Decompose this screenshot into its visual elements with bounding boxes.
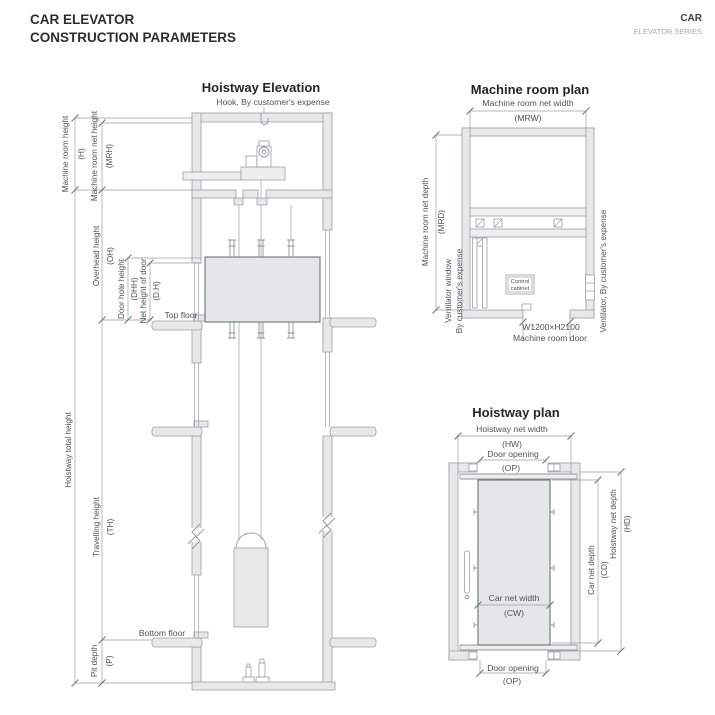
dim-net-height-of-door: Net height of door bbox=[139, 258, 148, 323]
series-label: ELEVATOR SERIES bbox=[634, 27, 702, 36]
hoistway-plan-car bbox=[465, 480, 555, 645]
pit-buffers bbox=[243, 659, 269, 682]
dim-hoistway-total-height: Hoistway total height bbox=[64, 412, 73, 488]
top-floor-label: Top floor bbox=[165, 310, 198, 320]
dim-door-opening-bottom-sym: (OP) bbox=[503, 676, 521, 686]
wall-break-right bbox=[319, 513, 335, 538]
dim-net-height-of-door-sym: (D.H) bbox=[152, 281, 161, 301]
dim-hoistway-net-depth: Hoistway net depth bbox=[609, 489, 618, 559]
counterweight-plan-dot bbox=[465, 595, 469, 599]
dim-hoistway-net-depth-sym: (HD) bbox=[623, 515, 632, 533]
dim-car-net-width: Car net width bbox=[489, 593, 540, 603]
note-ventilator-right: Ventilator, By customer's expense bbox=[599, 209, 608, 332]
page-title-line1: CAR ELEVATOR bbox=[30, 12, 135, 27]
dim-machine-room-net-depth: Machine room net depth bbox=[421, 177, 430, 266]
machine-room-plan-title: Machine room plan bbox=[471, 82, 590, 97]
dim-machine-room-height: Machine room height bbox=[61, 115, 70, 192]
dim-pit-depth-sym: (P) bbox=[105, 655, 114, 666]
machine-room-plan: Machine room plan bbox=[421, 82, 608, 343]
dim-machine-room-height-sym: (H) bbox=[77, 148, 86, 160]
drawing-page: CAR ELEVATOR CONSTRUCTION PARAMETERS CAR… bbox=[0, 0, 715, 715]
dim-machine-room-net-width: Machine room net width bbox=[482, 98, 573, 108]
note-ventilator-window-line1: Ventilator window bbox=[444, 259, 453, 323]
dim-travelling-height: Travelling height bbox=[92, 496, 101, 556]
dim-machine-room-net-height: Machine room net height bbox=[90, 110, 99, 201]
machine-room-door-name: Machine room door bbox=[513, 333, 587, 343]
page-title-line2: CONSTRUCTION PARAMETERS bbox=[30, 30, 236, 45]
dim-car-net-depth-sym: (CD) bbox=[600, 561, 609, 579]
note-ventilator-window-line2: By customer's expense bbox=[455, 248, 464, 333]
ventilator-right-shape bbox=[586, 275, 595, 300]
dim-machine-room-net-width-sym: (MRW) bbox=[514, 113, 541, 123]
ventilator-window-shape2 bbox=[483, 238, 488, 308]
bottom-floor-label: Bottom floor bbox=[139, 628, 185, 638]
machine-room-door-size: W1200×H2100 bbox=[522, 322, 580, 332]
control-cabinet: Control cabinet bbox=[506, 275, 534, 294]
dim-door-opening-top-sym: (OP) bbox=[502, 463, 520, 473]
brand-label: CAR bbox=[680, 13, 702, 24]
counterweight-plan bbox=[465, 551, 470, 593]
machine-room-door-leaf bbox=[522, 304, 531, 310]
control-cabinet-label2: cabinet bbox=[511, 286, 530, 292]
dim-hoistway-net-width: Hoistway net width bbox=[476, 424, 548, 434]
dim-pit-depth: Pit depth bbox=[90, 644, 99, 677]
dim-hoistway-net-width-sym: (HW) bbox=[502, 439, 522, 449]
header: CAR ELEVATOR CONSTRUCTION PARAMETERS CAR… bbox=[30, 12, 703, 45]
dim-door-hole-height: Door hole height bbox=[117, 258, 126, 319]
dim-door-opening-top: Door opening bbox=[487, 449, 539, 459]
elevation-title: Hoistway Elevation bbox=[202, 80, 321, 95]
hoistway-plan-title: Hoistway plan bbox=[472, 405, 559, 420]
dim-car-net-width-sym: (CW) bbox=[504, 608, 524, 618]
drawing-canvas: CAR ELEVATOR CONSTRUCTION PARAMETERS CAR… bbox=[0, 0, 715, 715]
dim-overhead-height: Overhead height bbox=[92, 225, 101, 286]
dim-door-hole-height-sym: (DHH) bbox=[130, 277, 139, 300]
dim-travelling-height-sym: (TH) bbox=[106, 519, 115, 536]
elevation-ropes bbox=[239, 162, 291, 540]
dim-overhead-height-sym: (OH) bbox=[106, 247, 115, 265]
elevation-car bbox=[205, 240, 320, 338]
ventilator-window-shape bbox=[473, 238, 478, 308]
elevation-counterweight bbox=[234, 533, 268, 627]
dim-door-opening-bottom: Door opening bbox=[487, 663, 539, 673]
dim-machine-room-net-depth-sym: (MRD) bbox=[437, 210, 446, 234]
hoistway-plan: Hoistway plan bbox=[449, 405, 632, 686]
elevation-diagram: Hoistway Elevation Hook, By customer's e… bbox=[61, 80, 376, 690]
control-cabinet-label1: Control bbox=[511, 279, 530, 285]
dim-machine-room-net-height-sym: (MRH) bbox=[105, 144, 114, 168]
dim-car-net-depth: Car net depth bbox=[587, 545, 596, 595]
elevation-hook-note: Hook, By customer's expense bbox=[216, 97, 330, 107]
wall-break-left bbox=[188, 524, 204, 549]
